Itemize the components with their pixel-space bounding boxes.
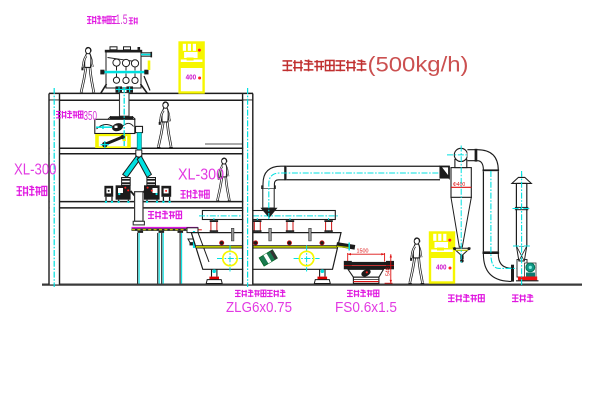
svg-text:400: 400 [186, 73, 197, 82]
svg-text:ZLG6x0.75: ZLG6x0.75 [226, 300, 292, 316]
svg-text:XL-300: XL-300 [178, 166, 224, 183]
svg-text:XL-300: XL-300 [14, 161, 57, 178]
svg-text:548: 548 [385, 267, 391, 276]
svg-text:350: 350 [84, 109, 98, 123]
svg-text:400: 400 [436, 263, 447, 272]
svg-text:FS0.6x1.5: FS0.6x1.5 [335, 300, 397, 316]
svg-text:(500kg/h): (500kg/h) [368, 54, 469, 77]
svg-text:1500: 1500 [357, 249, 369, 255]
svg-text:1.5: 1.5 [116, 12, 128, 27]
